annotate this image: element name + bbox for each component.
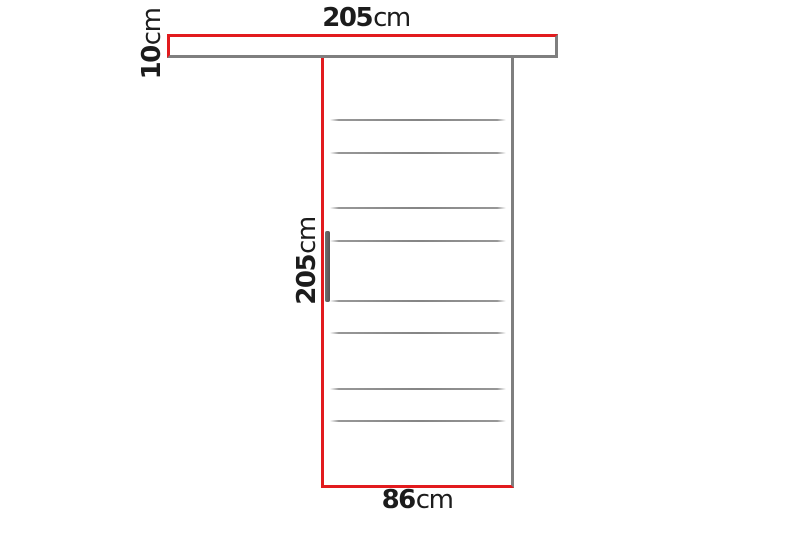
door-height-value: 205 [292,255,322,305]
door-groove-line [330,420,506,422]
door-height-unit: cm [292,217,322,254]
rail-thickness-value: 10 [137,46,167,79]
door-groove-line [330,300,506,302]
door-groove-line [330,332,506,334]
dimension-label-door-width: 86cm [357,486,477,514]
dimension-label-rail-width: 205cm [305,4,427,32]
rail-thickness-unit: cm [137,9,167,46]
door-groove-line [330,207,506,209]
door-groove-line [330,388,506,390]
rail-width-value: 205 [322,3,372,33]
rail-width-unit: cm [373,3,410,33]
door-width-unit: cm [416,485,453,515]
door-width-value: 86 [382,485,415,515]
door-handle [325,231,330,302]
door-groove-line [330,152,506,154]
door-panel [321,58,514,488]
diagram-canvas: 205cm 10cm 205cm 86cm [0,0,800,533]
door-groove-line [330,240,506,242]
door-groove-line [330,119,506,121]
dimension-label-door-height: 205cm [293,216,323,306]
dimension-label-rail-thickness: 10cm [138,0,168,89]
top-rail [167,34,558,58]
